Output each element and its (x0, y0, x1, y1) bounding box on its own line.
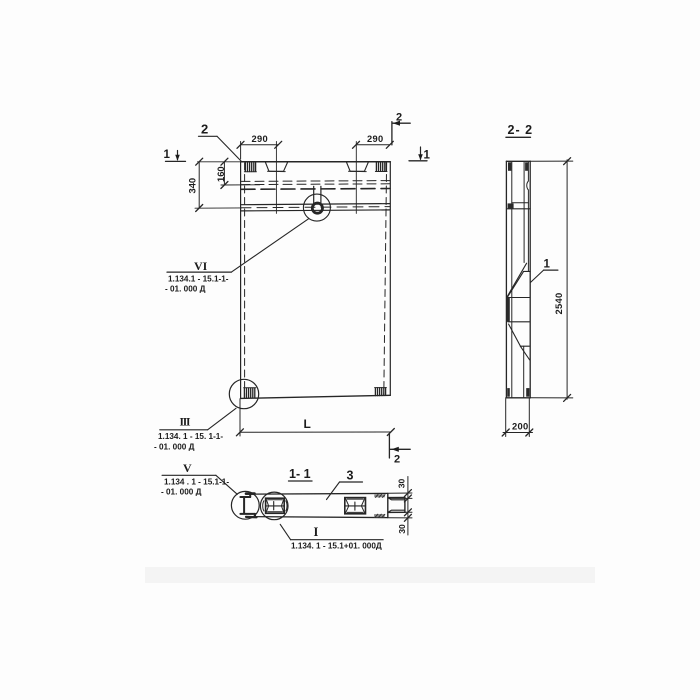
svg-text:1: 1 (164, 149, 171, 161)
svg-text:1.134. 1 - 15.1+01. 000Д: 1.134. 1 - 15.1+01. 000Д (291, 541, 382, 550)
svg-text:2: 2 (394, 453, 400, 465)
svg-text:30: 30 (396, 479, 406, 489)
svg-text:1- 1: 1- 1 (289, 467, 311, 481)
svg-text:2: 2 (201, 122, 208, 137)
svg-text:200: 200 (512, 420, 529, 431)
svg-text:340: 340 (187, 178, 198, 194)
svg-text:30: 30 (397, 524, 407, 534)
svg-text:- 01. 000 Д: - 01. 000 Д (165, 285, 206, 294)
svg-text:290: 290 (367, 134, 383, 144)
svg-text:1.134 . 1 - 15.1-1-: 1.134 . 1 - 15.1-1- (164, 478, 229, 487)
svg-text:2: 2 (396, 111, 402, 123)
svg-text:1: 1 (424, 150, 431, 162)
svg-text:L: L (304, 417, 311, 431)
svg-text:3: 3 (347, 469, 354, 483)
svg-text:1.134. 1 - 15. 1-1-: 1.134. 1 - 15. 1-1- (158, 432, 223, 441)
svg-text:160: 160 (215, 166, 226, 182)
svg-text:290: 290 (252, 134, 268, 144)
svg-text:I: I (314, 525, 319, 539)
svg-text:1: 1 (544, 259, 551, 271)
svg-text:2540: 2540 (553, 292, 564, 314)
svg-text:1.134.1 - 15.1-1-: 1.134.1 - 15.1-1- (168, 275, 229, 284)
svg-text:- 01. 000 Д: - 01. 000 Д (161, 488, 202, 497)
svg-text:III: III (180, 417, 192, 429)
svg-text:2- 2: 2- 2 (508, 123, 534, 137)
svg-text:V: V (183, 461, 192, 475)
svg-text:- 01. 000 Д: - 01. 000 Д (154, 443, 195, 452)
svg-text:VI: VI (194, 259, 208, 273)
